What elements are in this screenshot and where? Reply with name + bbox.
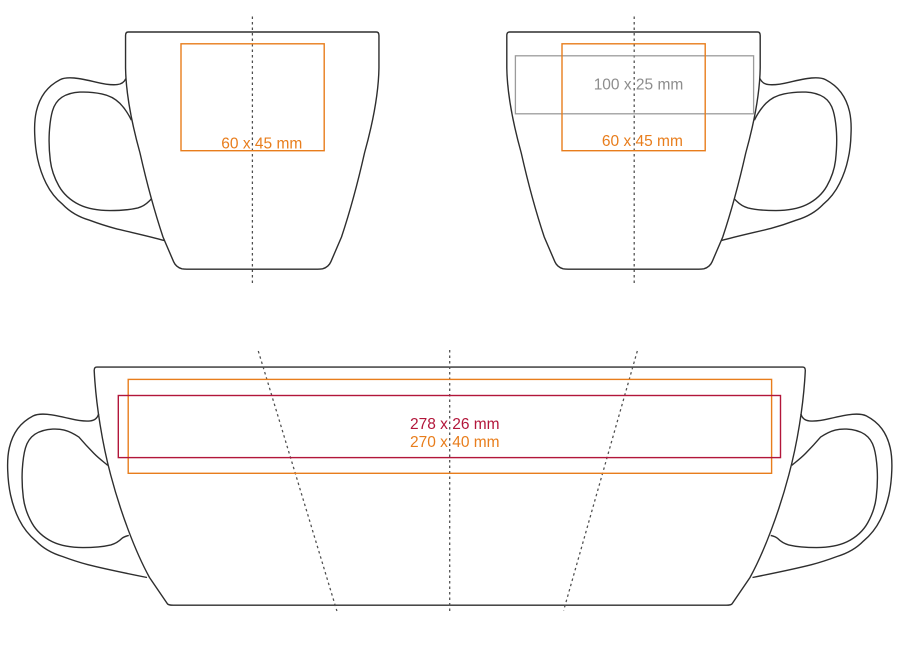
svg-text:278 x 26 mm: 278 x 26 mm	[410, 416, 500, 433]
svg-text:270 x 40 mm: 270 x 40 mm	[410, 434, 500, 451]
svg-text:60 x 45 mm: 60 x 45 mm	[602, 133, 683, 150]
svg-text:60 x 45 mm: 60 x 45 mm	[221, 135, 302, 152]
svg-text:100 x 25 mm: 100 x 25 mm	[594, 76, 684, 93]
